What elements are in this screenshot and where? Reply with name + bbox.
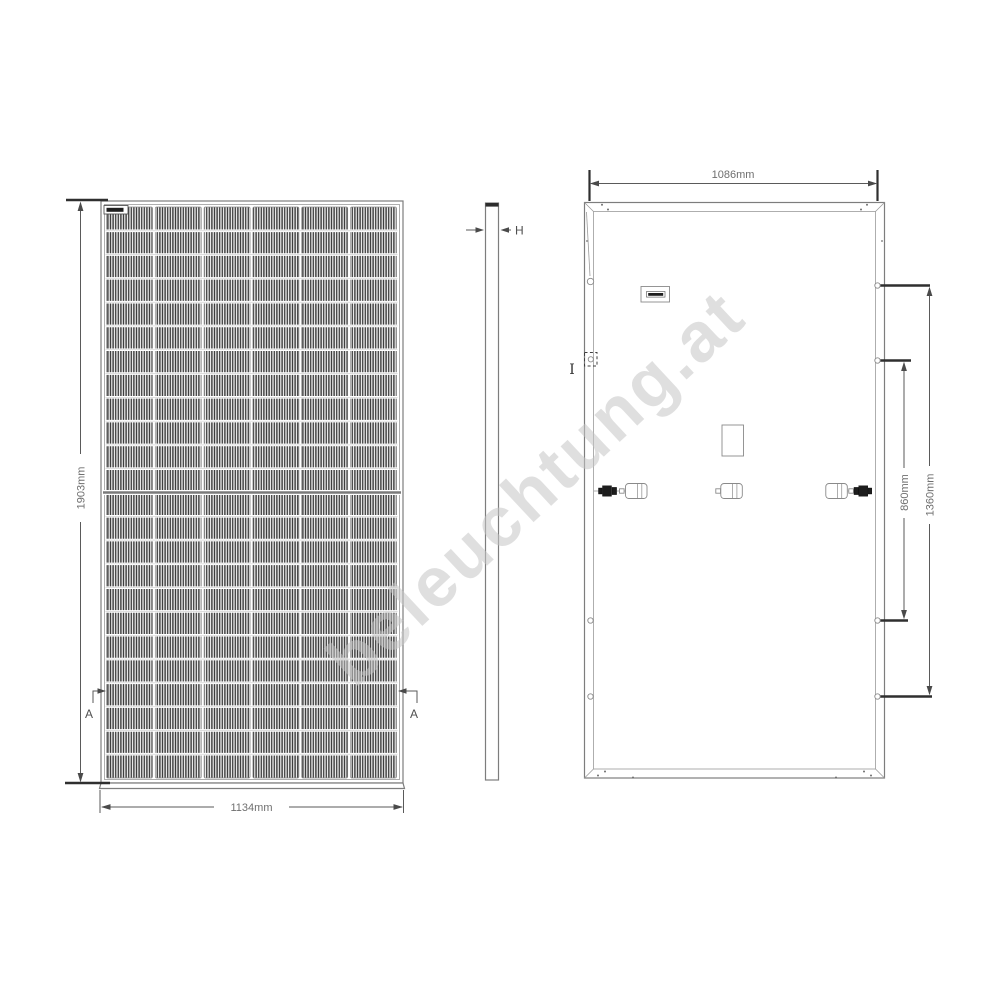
thickness-label: H <box>515 224 524 238</box>
mc4-tip <box>868 488 872 494</box>
mount-inner-label: 860mm <box>899 474 911 511</box>
cable-gland <box>716 489 721 493</box>
mount-hole <box>588 357 593 362</box>
mc4-nut <box>612 487 617 494</box>
cable-gland <box>849 489 854 493</box>
front-height-label: 1903mm <box>76 467 88 510</box>
arrowhead-up-icon <box>927 287 933 296</box>
mc4-tip <box>599 488 603 494</box>
connector-housing <box>721 484 743 499</box>
side-profile-cap <box>486 203 499 207</box>
arrowhead-down-icon <box>901 610 907 619</box>
back-width-label: 1086mm <box>712 169 755 181</box>
front-bottom-flange <box>100 783 405 789</box>
mount-outer-label: 1360mm <box>924 474 936 517</box>
mount-hole <box>588 618 593 623</box>
arrowhead-down-icon <box>78 773 84 783</box>
arrowhead-left-icon <box>101 804 111 810</box>
front-view: 1903mm 1134mm A A <box>65 200 418 814</box>
mount-hole <box>588 694 593 699</box>
mount-hole <box>875 618 880 623</box>
solar-panel-dimension-drawing: 1903mm 1134mm A A <box>0 0 1000 1000</box>
arrowhead-up-icon <box>901 362 907 371</box>
front-width-label: 1134mm <box>231 802 273 814</box>
mount-outer-dimension: 1360mm <box>924 287 936 695</box>
mc4-nut <box>854 487 859 494</box>
mc4-body <box>859 486 868 496</box>
mc4-body <box>603 486 612 496</box>
junction-box <box>641 287 670 303</box>
arrowhead-left-icon <box>501 227 510 233</box>
ground-hole <box>587 278 593 284</box>
back-view: I <box>569 169 936 779</box>
back-width-dimension: 1086mm <box>590 169 878 201</box>
mount-hole <box>875 283 880 288</box>
front-width-dimension: 1134mm <box>100 790 404 814</box>
section-label-right: A <box>410 707 418 721</box>
connector-housing <box>826 484 848 499</box>
mount-inner-dimension: 860mm <box>899 362 911 619</box>
arrowhead-left-icon <box>590 181 599 187</box>
section-label-left: A <box>85 707 93 721</box>
mount-hole <box>875 358 880 363</box>
arrowhead-right-icon <box>394 804 404 810</box>
arrowhead-right-icon <box>868 181 877 187</box>
arrowhead-up-icon <box>78 202 84 212</box>
detail-label: I <box>569 362 575 378</box>
mount-hole <box>875 694 880 699</box>
nameplate <box>722 425 744 456</box>
front-label-barcode <box>107 208 124 212</box>
connector-housing <box>626 484 648 499</box>
arrowhead-right-icon <box>476 227 485 233</box>
junction-box-terminal <box>648 293 663 296</box>
cable-gland <box>620 489 625 493</box>
arrowhead-down-icon <box>927 686 933 695</box>
drawing-canvas: 1903mm 1134mm A A <box>0 0 1000 1000</box>
